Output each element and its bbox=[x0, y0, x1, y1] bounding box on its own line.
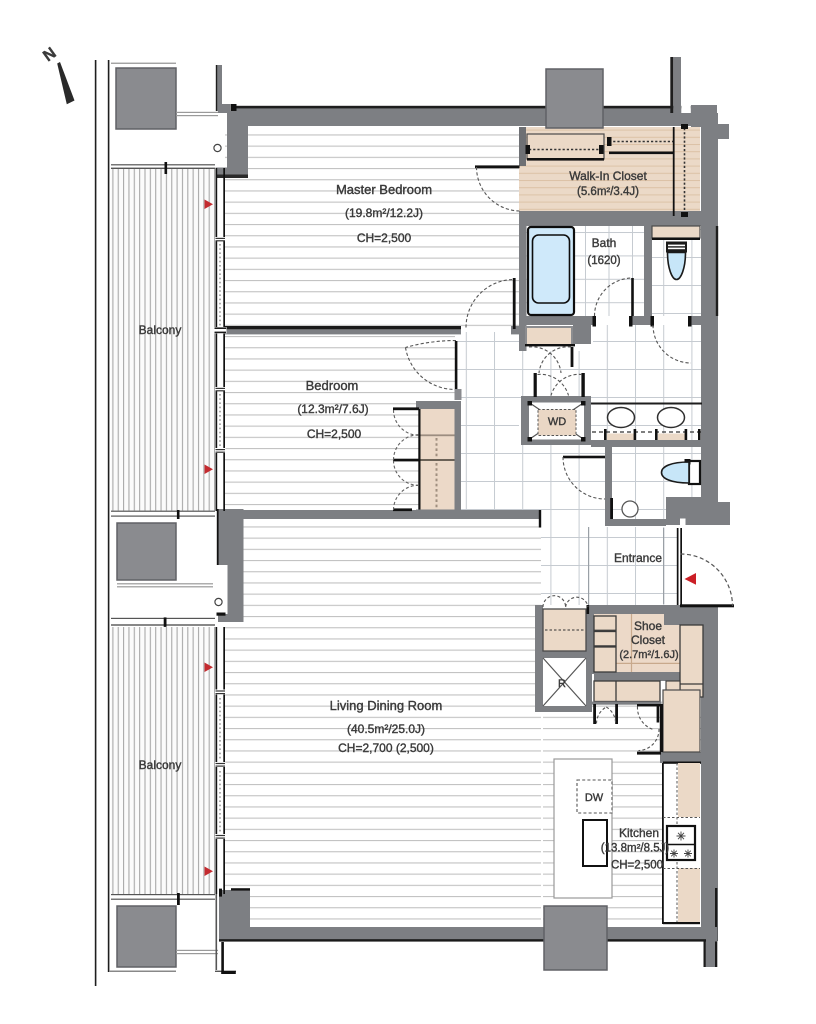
svg-text:Bedroom: Bedroom bbox=[306, 378, 359, 393]
svg-text:(40.5m²/25.0J): (40.5m²/25.0J) bbox=[347, 722, 425, 736]
svg-text:(5.6m²/3.4J): (5.6m²/3.4J) bbox=[577, 186, 639, 198]
svg-text:Entrance: Entrance bbox=[614, 551, 662, 565]
svg-text:DW: DW bbox=[585, 792, 604, 804]
svg-text:(12.3m²/7.6J): (12.3m²/7.6J) bbox=[297, 402, 368, 416]
svg-text:Living Dining Room: Living Dining Room bbox=[330, 698, 443, 713]
svg-text:Shoe: Shoe bbox=[634, 619, 662, 633]
svg-text:Kitchen: Kitchen bbox=[619, 826, 659, 840]
svg-text:CH=2,700 (2,500): CH=2,700 (2,500) bbox=[338, 741, 434, 755]
svg-text:Balcony: Balcony bbox=[139, 323, 182, 337]
svg-text:(19.8m²/12.2J): (19.8m²/12.2J) bbox=[345, 206, 423, 220]
svg-text:(1620): (1620) bbox=[587, 255, 620, 267]
svg-text:CH=2,500: CH=2,500 bbox=[357, 231, 412, 245]
svg-text:Bath: Bath bbox=[592, 236, 617, 250]
svg-text:R: R bbox=[558, 678, 566, 690]
svg-text:CH=2,500: CH=2,500 bbox=[611, 860, 663, 872]
svg-text:(13.8m²/8.5J): (13.8m²/8.5J) bbox=[601, 843, 670, 855]
svg-text:Balcony: Balcony bbox=[139, 758, 182, 772]
svg-text:Closet: Closet bbox=[631, 633, 666, 647]
svg-text:CH=2,500: CH=2,500 bbox=[307, 427, 362, 441]
svg-text:WD: WD bbox=[548, 416, 566, 428]
svg-text:Walk-In Closet: Walk-In Closet bbox=[569, 169, 647, 183]
svg-text:(2.7m²/1.6J): (2.7m²/1.6J) bbox=[619, 649, 678, 661]
svg-text:Master Bedroom: Master Bedroom bbox=[336, 182, 432, 197]
